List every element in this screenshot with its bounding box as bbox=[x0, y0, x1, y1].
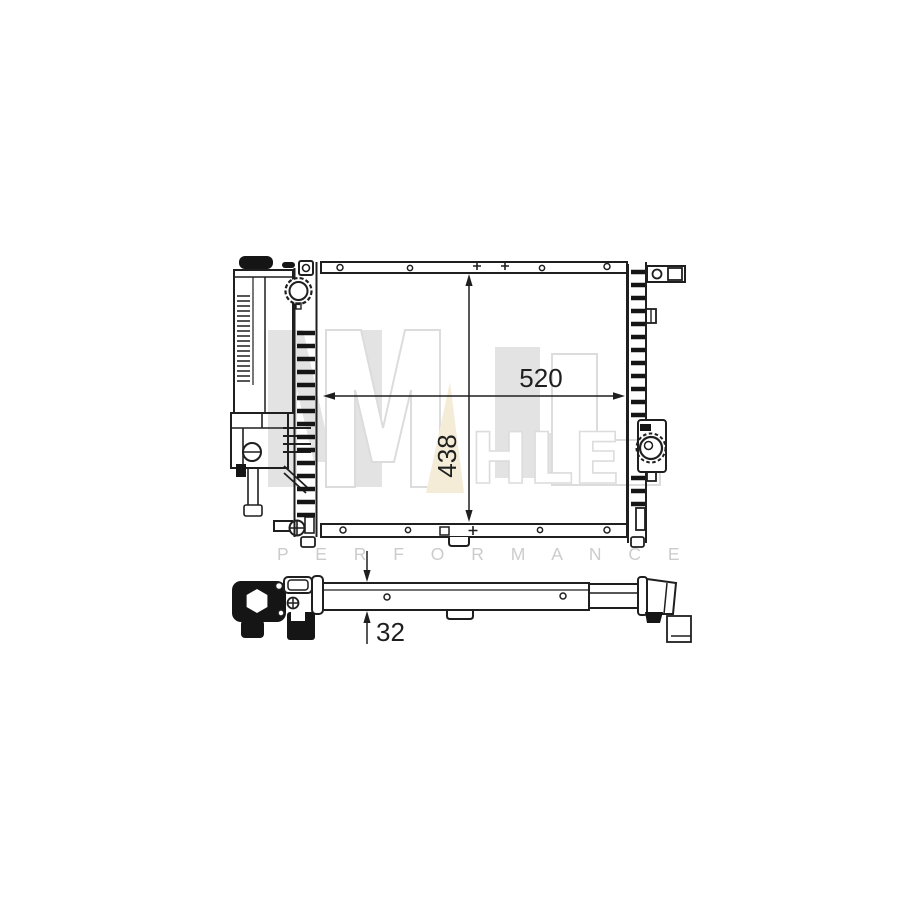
filler-cap bbox=[239, 256, 273, 269]
drain-nub bbox=[236, 464, 246, 477]
mount-flange bbox=[312, 576, 323, 614]
mahle-watermark: HLE bbox=[268, 330, 660, 500]
height-label: 438 bbox=[432, 434, 462, 477]
top-tank-bar bbox=[321, 262, 627, 273]
watermark-m-front bbox=[326, 330, 440, 487]
radiator-technical-drawing: HLE bbox=[0, 0, 900, 900]
top-view-right-cap bbox=[638, 577, 691, 642]
left-ribs bbox=[297, 333, 315, 515]
top-left-tab bbox=[299, 261, 313, 275]
top-view-left-assembly bbox=[232, 576, 323, 640]
outlet-stub-left bbox=[241, 620, 264, 638]
drawing-svg: HLE bbox=[0, 0, 900, 900]
watermark-performance: P E R F O R M A N C E bbox=[277, 544, 691, 564]
tank-fins bbox=[237, 296, 250, 381]
hose-fitting bbox=[637, 420, 667, 481]
top-view bbox=[232, 576, 691, 642]
top-view-clip bbox=[447, 610, 473, 619]
watermark-hle: HLE bbox=[470, 418, 621, 500]
right-side-column bbox=[628, 262, 685, 547]
front-view bbox=[231, 256, 685, 547]
depth-label: 32 bbox=[376, 617, 405, 647]
small-cap bbox=[282, 262, 295, 268]
top-view-bar bbox=[323, 583, 589, 610]
width-label: 520 bbox=[519, 363, 562, 393]
